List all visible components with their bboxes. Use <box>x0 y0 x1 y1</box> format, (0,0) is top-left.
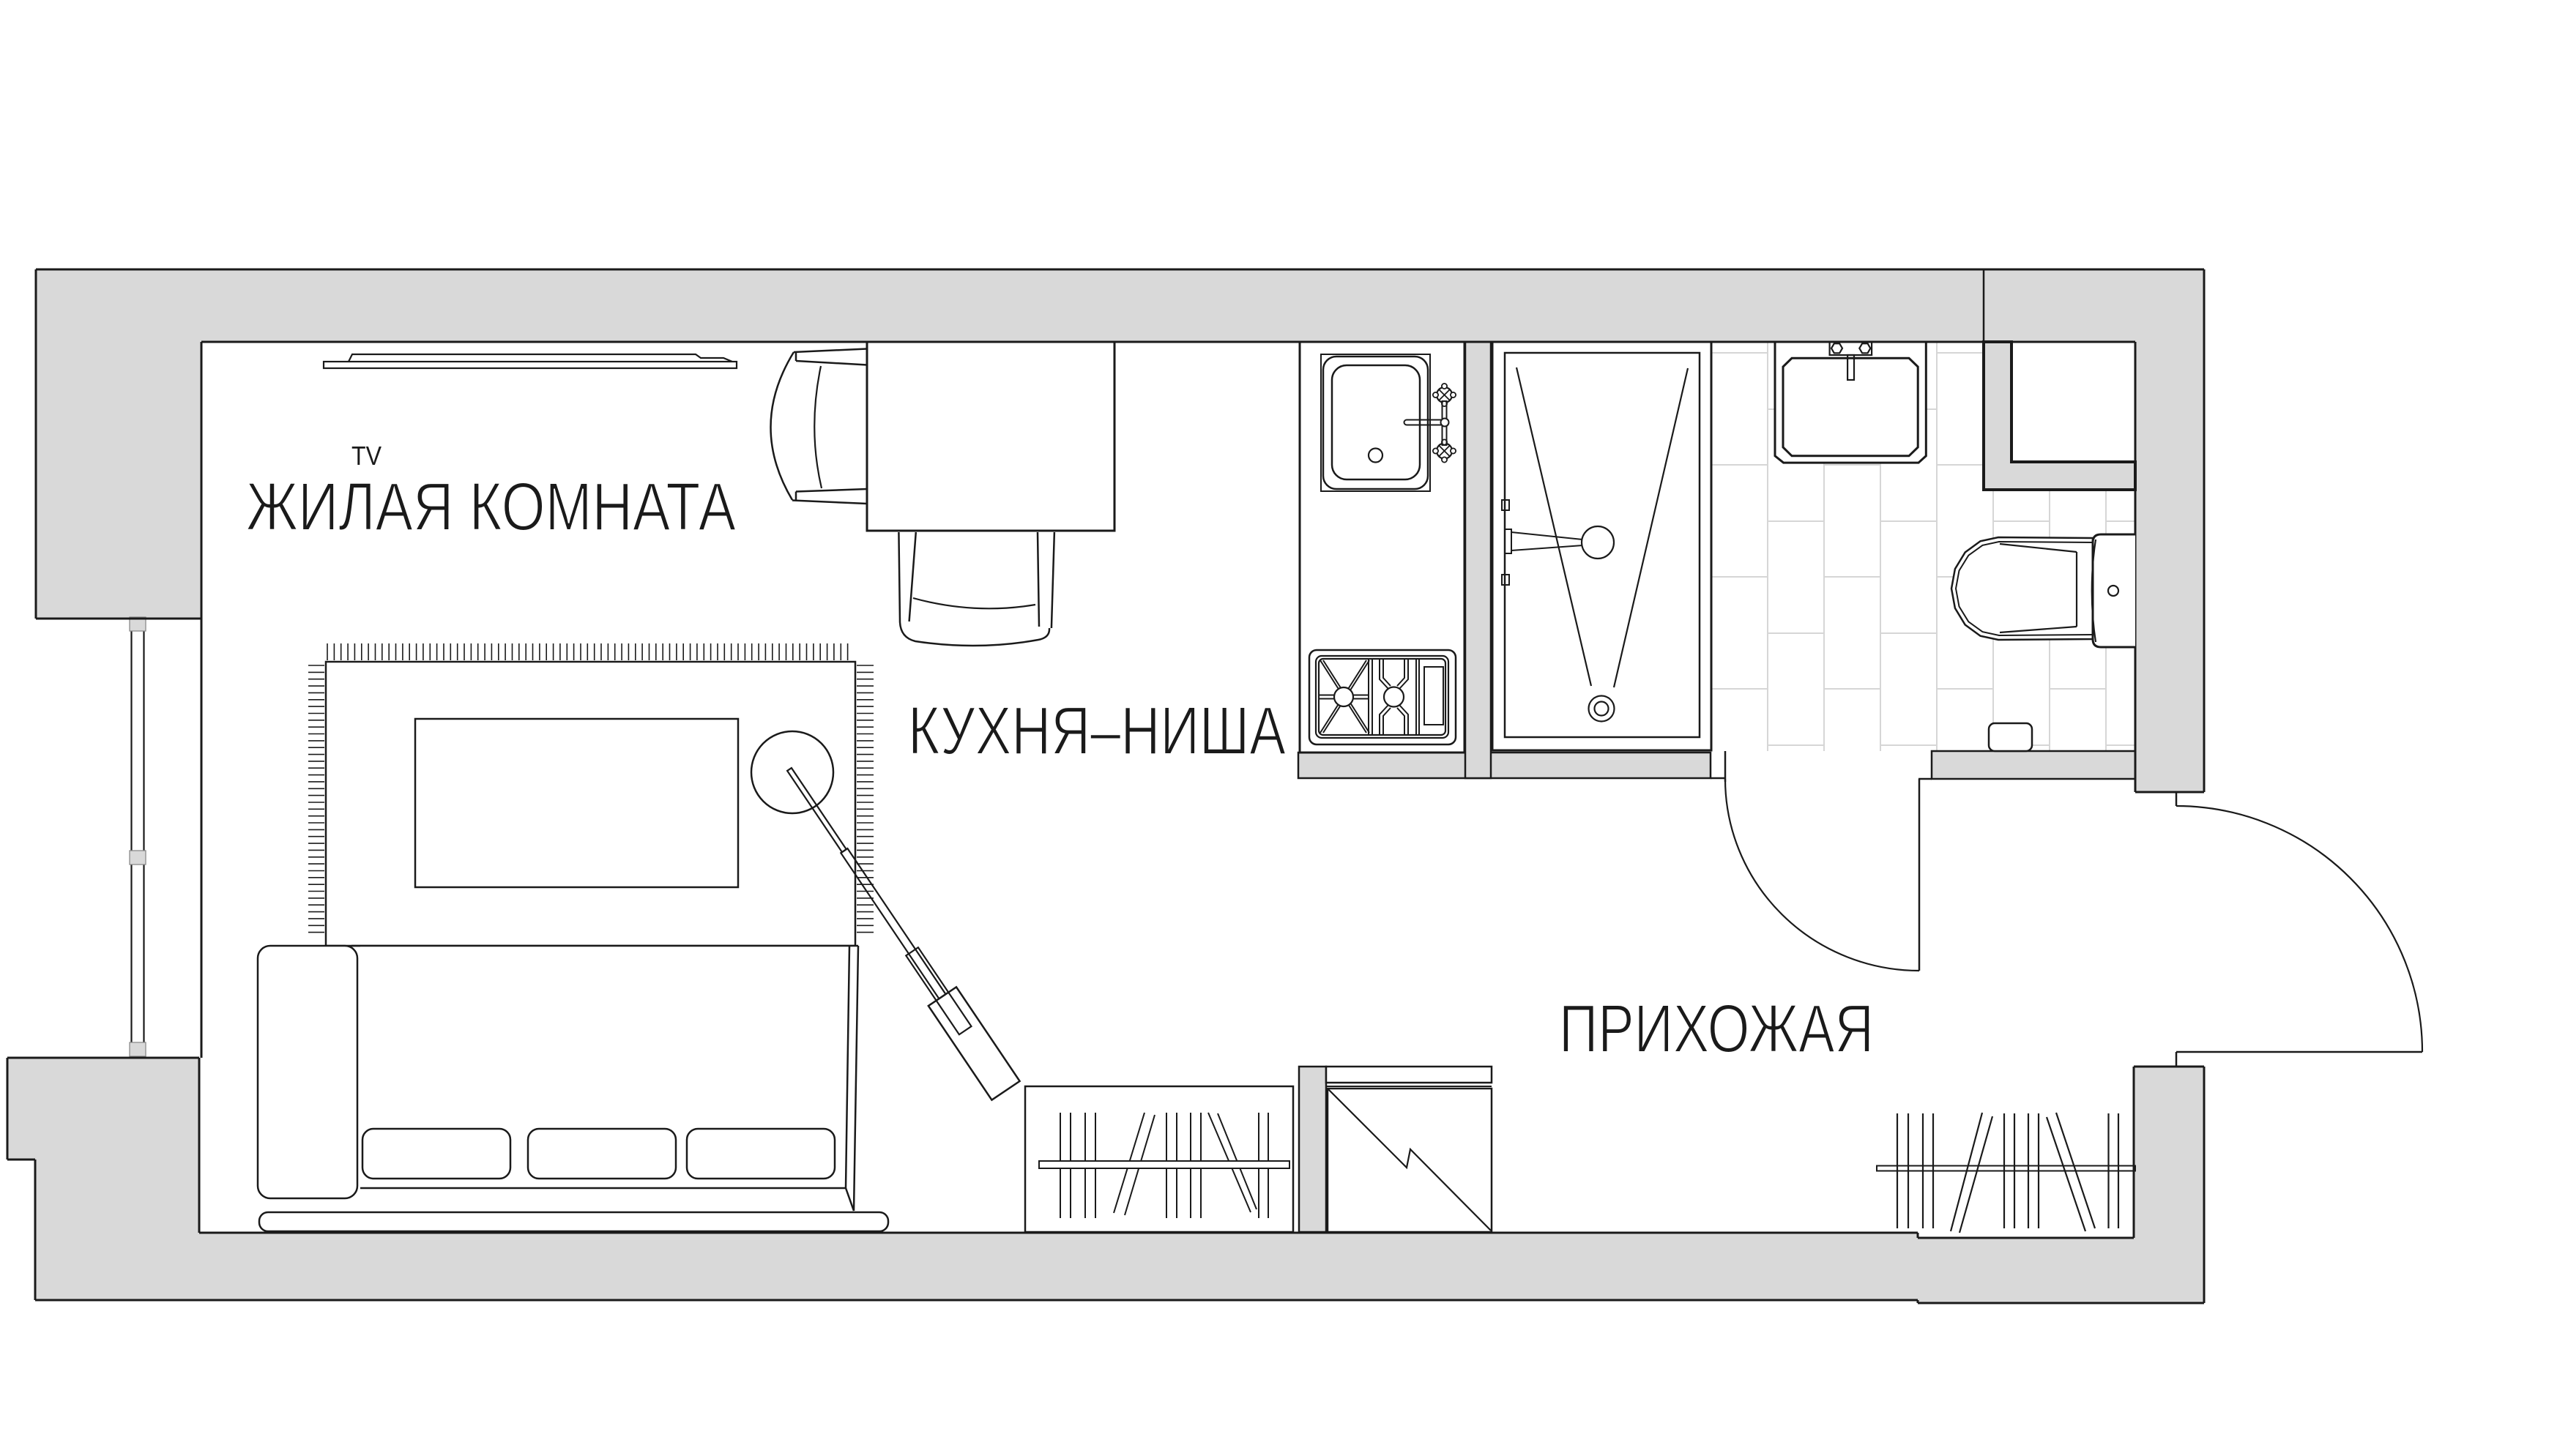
svg-text:КУХНЯ–НИША: КУХНЯ–НИША <box>908 692 1286 769</box>
svg-text:ПРИХОЖАЯ: ПРИХОЖАЯ <box>1559 990 1874 1067</box>
svg-text:TV: TV <box>351 441 382 471</box>
svg-text:ЖИЛАЯ КОМНАТА: ЖИЛАЯ КОМНАТА <box>246 468 736 545</box>
